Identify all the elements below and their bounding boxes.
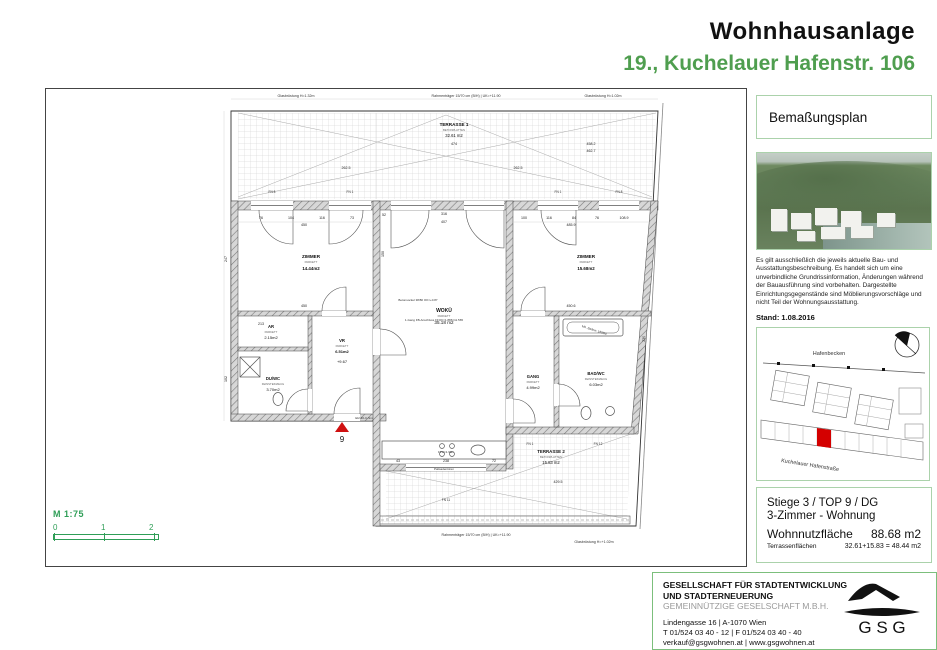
page-header: Wohnhausanlage 19., Kuchelauer Hafenstr.… xyxy=(623,18,915,76)
gsg-logo-bird xyxy=(848,584,900,601)
dimension-label: 104 xyxy=(288,216,294,220)
plan-date: Stand: 1.08.2016 xyxy=(756,313,932,322)
dimension-label: 247 xyxy=(224,256,228,262)
scale-tick-label: 2 xyxy=(149,523,153,532)
scale-tick-label: 1 xyxy=(101,523,105,532)
plan-type-label: Bemaßungsplan xyxy=(769,110,867,125)
dimension-label: 474 xyxy=(451,142,457,146)
room-name: ZIMMER xyxy=(577,254,596,259)
disclaimer-text: Es gilt ausschließlich die jeweils aktue… xyxy=(756,257,930,308)
dimension-label: 76 xyxy=(595,216,599,220)
window-tag: FN 1 xyxy=(347,190,354,194)
note: FPH=1.90m xyxy=(438,450,455,454)
scale-tick-label: 0 xyxy=(53,523,57,532)
floor-plan-drawing: 9 EI2 30-C-Sm TERRASSE 1 BETONPLATTEN 32… xyxy=(46,89,744,564)
gsg-logo-text: G S G xyxy=(858,618,905,635)
dimension-label: 100 xyxy=(521,216,527,220)
washbasin xyxy=(606,407,615,416)
room-area: 15.83 m2 xyxy=(542,460,560,465)
living-area-label: Wohnnutzfläche xyxy=(767,527,853,541)
room-name: BAD/WC xyxy=(587,371,604,376)
window-tag: FN 8 xyxy=(616,190,623,194)
project-title: Wohnhausanlage xyxy=(623,18,915,46)
room-name: AR xyxy=(268,324,274,329)
dimension-label: 108.9 xyxy=(620,216,629,220)
plan-type-box: Bemaßungsplan xyxy=(756,95,932,139)
highlighted-unit-marker xyxy=(817,428,831,448)
street-label: Kuchelauer Hafenstraße xyxy=(781,458,840,473)
edge-label: Glasbrüstung H=1.02m xyxy=(584,94,621,98)
site-plan-drawing: Hafenbecken xyxy=(757,328,929,480)
dimension-label: 462.7 xyxy=(587,149,596,153)
dimension-label: 116 xyxy=(319,216,325,220)
dimension-label: 429.5 xyxy=(554,480,563,484)
entrance-number: 9 xyxy=(340,435,345,444)
dimension-label: 458.2 xyxy=(587,142,596,146)
dimension-label: 76 xyxy=(259,216,263,220)
room-floor: PARKETT xyxy=(336,344,349,348)
room-area: 14.44m2 xyxy=(302,266,320,271)
gsg-logo-bar xyxy=(844,608,920,616)
room-floor: FEINSTEINZEUG xyxy=(262,382,284,386)
company-web: verkauf@gsgwohnen.at | www.gsgwohnen.at xyxy=(663,638,929,648)
room-area: 6.03m2 xyxy=(589,382,603,387)
room-name: TERRASSE 2 xyxy=(537,449,565,454)
room-floor: FEINSTEINZEUG xyxy=(585,377,607,381)
entrance-arrow xyxy=(335,422,349,432)
entrance-door-label: EI2 30-C-Sm xyxy=(355,416,373,420)
room-floor: BETONPLATTEN xyxy=(540,455,562,459)
unit-id: Stiege 3 / TOP 9 / DG xyxy=(767,497,921,509)
toilet xyxy=(581,407,591,420)
dimension-label: 238 xyxy=(443,459,449,463)
scale-bar: M 1:75 0 1 2 xyxy=(53,509,193,540)
site-row-band xyxy=(761,420,923,460)
dimension-label: 72 xyxy=(492,459,496,463)
window-tag: FN 1 xyxy=(555,190,562,194)
harbor-label: Hafenbecken xyxy=(813,351,845,357)
scale-numbers: 0 1 2 xyxy=(53,523,193,533)
room-area: 15.68m2 xyxy=(577,266,595,271)
project-address: 19., Kuchelauer Hafenstr. 106 xyxy=(623,52,915,76)
site-plan-box: Hafenbecken xyxy=(756,327,930,481)
dimension-label: 213 xyxy=(258,322,264,326)
gsg-logo: G S G xyxy=(838,579,926,635)
company-box: GESELLSCHAFT FÜR STADTENTWICKLUNG UND ST… xyxy=(652,572,937,650)
room-floor: PARKETT xyxy=(527,380,540,384)
room-floor: BETONPLATTEN xyxy=(443,128,465,132)
window-tag: FN 11 xyxy=(442,498,451,502)
sidebar: Bemaßungsplan Es gilt ausschließlich die… xyxy=(756,95,932,563)
room-floor: PARKETT xyxy=(265,330,278,334)
unit-info-box: Stiege 3 / TOP 9 / DG 3-Zimmer - Wohnung… xyxy=(756,487,932,563)
dimension-label: 316 xyxy=(441,212,447,216)
scale-ruler xyxy=(53,534,159,540)
room-name: VR xyxy=(339,338,345,343)
dimension-label: 450 xyxy=(301,304,307,308)
dimension-label: 102 xyxy=(224,376,228,382)
project-photo xyxy=(756,152,932,250)
dimension-label: 150 xyxy=(381,251,385,257)
dimension-label: 450.6 xyxy=(567,304,576,308)
window-tag: FN 8 xyxy=(269,190,276,194)
room-area: 32.61 m2 xyxy=(445,133,463,138)
room-level: +9.67 xyxy=(337,359,348,364)
kitchen-sink xyxy=(471,445,485,455)
note: Palisadentüren xyxy=(434,467,454,471)
unit-type: 3-Zimmer - Wohnung xyxy=(767,510,921,522)
page: Wohnhausanlage 19., Kuchelauer Hafenstr.… xyxy=(0,0,937,650)
scale-label: M 1:75 xyxy=(53,509,193,519)
edge-label: Rahmenträger 15/70 cm (B/H) | UK=+11.90 xyxy=(442,533,511,537)
room-name: GANG xyxy=(527,374,540,379)
dimension-label: 335 xyxy=(642,336,647,342)
dimension-label: 73 xyxy=(350,216,354,220)
dimension-label: 43 xyxy=(396,459,400,463)
room-name: ZIMMER xyxy=(302,254,321,259)
window-tag: FN 12 xyxy=(594,442,603,446)
dimension-label: 262.5 xyxy=(342,166,351,170)
room-area: 4.99m2 xyxy=(526,385,540,390)
terrace-area-value: 32.61+15.83 = 48.44 m2 xyxy=(845,543,921,550)
edge-label: Rahmenträger 15/70 cm (B/H) | UK=+11.90 xyxy=(432,94,501,98)
dimension-label: 84 xyxy=(572,216,576,220)
floor-plan-sheet: 9 EI2 30-C-Sm TERRASSE 1 BETONPLATTEN 32… xyxy=(45,88,747,567)
room-floor: PARKETT xyxy=(305,260,318,264)
toilet-duwc xyxy=(273,393,283,406)
room-name: TERRASSE 1 xyxy=(440,122,469,127)
quay-line xyxy=(763,363,925,373)
room-name: WOKÜ xyxy=(436,307,452,314)
living-area-value: 88.68 m2 xyxy=(871,527,921,541)
dimension-label: 262.5 xyxy=(514,166,523,170)
dimension-label: 52 xyxy=(382,213,386,217)
room-name: DU/WC xyxy=(266,376,280,381)
terrace-area-label: Terrassenflächen xyxy=(767,543,817,550)
north-compass-icon xyxy=(895,331,919,357)
room-area: 3.70m2 xyxy=(266,387,280,392)
dimension-label: 485.9 xyxy=(567,223,576,227)
dimension-label: 407 xyxy=(441,220,447,224)
dimension-label: 116 xyxy=(546,216,552,220)
room-area: 2.15m2 xyxy=(264,335,278,340)
note: 1-Gang FB-Anschluss FFOK=1.886=11.565 xyxy=(405,318,463,322)
edge-label: Glasbrüstung H=1.32m xyxy=(277,94,314,98)
room-area: 6.51m2 xyxy=(335,349,349,354)
window-tag: FN 1 xyxy=(527,442,534,446)
room-floor: PARKETT xyxy=(580,260,593,264)
dimension-label: 450 xyxy=(301,223,307,227)
note: Betonsockel 38/80 OK=+0.87 xyxy=(398,298,438,302)
edge-label: Glasbrüstung H=+1.02m xyxy=(574,540,613,544)
